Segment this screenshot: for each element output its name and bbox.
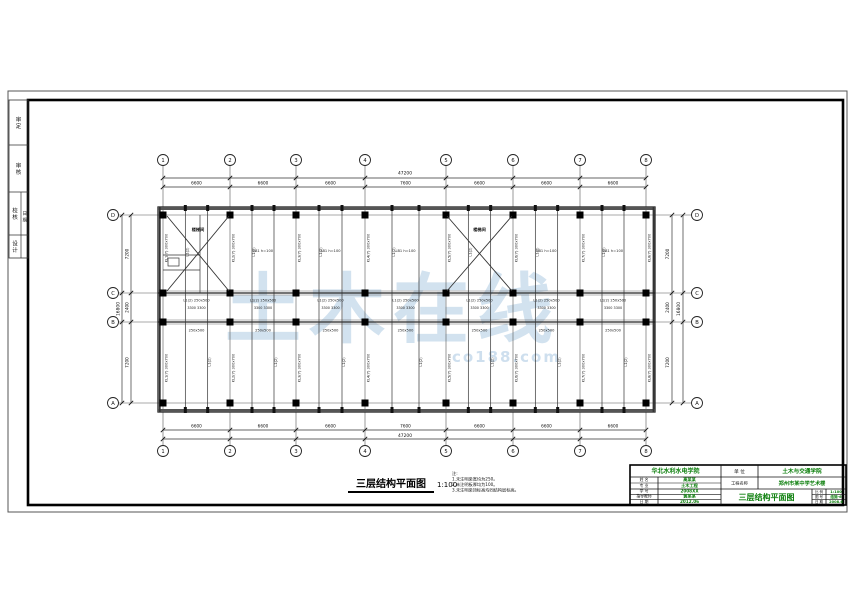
beam-label: L1(2) bbox=[419, 357, 423, 367]
dim-segment-bottom: 6600 bbox=[191, 424, 202, 429]
grid-bubble-label: 2 bbox=[228, 158, 231, 164]
slab-label: LB1 h=100 bbox=[395, 249, 416, 253]
column bbox=[160, 319, 167, 326]
beam-label: L1(2) 250x500 bbox=[317, 299, 344, 303]
dim-segment-left: 7200 bbox=[125, 357, 130, 368]
note-line: 3.未注明梁顶标高均同结构层标高。 bbox=[452, 487, 519, 494]
edge-stub bbox=[418, 205, 421, 211]
column bbox=[643, 212, 650, 219]
dim-segment-right: 7200 bbox=[665, 248, 670, 259]
beam-label: L1(2) 250x500 bbox=[392, 299, 419, 303]
beam-label: KL6(7) 300x700 bbox=[515, 233, 519, 262]
column bbox=[577, 319, 584, 326]
edge-stub bbox=[251, 407, 254, 413]
beam-dim-label: 3300 3300 bbox=[604, 306, 622, 310]
strip-cell-text: 设 bbox=[12, 239, 18, 247]
edge-stub bbox=[184, 205, 187, 211]
inner-border bbox=[28, 100, 843, 505]
beam-label: KL5(7) 300x700 bbox=[448, 233, 452, 262]
titleblock-meta-label: 图 号 bbox=[815, 494, 824, 499]
titleblock-school: 华北水利水电学院 bbox=[651, 467, 699, 475]
edge-stub bbox=[601, 407, 604, 413]
beam-dim-label: 3300 3300 bbox=[470, 306, 488, 310]
column bbox=[160, 400, 167, 407]
grid-bubble-label: 2 bbox=[228, 449, 231, 455]
edge-stub bbox=[391, 205, 394, 211]
dim-segment-bottom: 6600 bbox=[258, 424, 269, 429]
column bbox=[293, 400, 300, 407]
edge-stub bbox=[601, 205, 604, 211]
drawing-sheet: 土木在线 co188.com 审定审核校核设计日期楼梯间楼梯间KL1(7) 30… bbox=[0, 0, 858, 608]
drawing-caption-scale: 1:100 bbox=[437, 481, 457, 489]
beam-label: KL7(7) 300x700 bbox=[582, 353, 586, 382]
beam-label: KL8(7) 300x700 bbox=[648, 233, 652, 262]
beam-label: L1(2) bbox=[558, 357, 562, 367]
column bbox=[362, 212, 369, 219]
dim-segment-top: 6600 bbox=[191, 181, 202, 186]
titleblock-unit-value: 土木与交通学院 bbox=[782, 467, 822, 475]
column bbox=[643, 290, 650, 297]
edge-stub bbox=[341, 205, 344, 211]
grid-bubble-label: A bbox=[111, 401, 115, 407]
drawing-caption-title: 三层结构平面图 bbox=[348, 479, 434, 493]
beam-label: KL4(7) 300x700 bbox=[367, 353, 371, 382]
titleblock-meta-label: 日 期 bbox=[815, 499, 824, 504]
edge-stub bbox=[623, 205, 626, 211]
dim-segment-right: 7200 bbox=[665, 357, 670, 368]
dim-segment-bottom: 6600 bbox=[474, 424, 485, 429]
beam-label: 250x500 bbox=[189, 329, 206, 333]
dim-segment-top: 6600 bbox=[541, 181, 552, 186]
column bbox=[227, 319, 234, 326]
beam-label: 250x500 bbox=[539, 329, 556, 333]
slab-label: LB1 h=100 bbox=[536, 249, 557, 253]
edge-stub bbox=[489, 407, 492, 413]
titleblock-project-value: 郑州市某中学艺术楼 bbox=[779, 479, 827, 487]
beam-label: 250x500 bbox=[472, 329, 489, 333]
strip-cell-text: 核 bbox=[12, 213, 18, 221]
titleblock-info-label: 专 业 bbox=[640, 483, 649, 488]
outer-border bbox=[8, 91, 847, 512]
titleblock-info-value: 2008XX bbox=[680, 488, 699, 493]
titleblock-meta-value: 1:100 bbox=[830, 490, 842, 494]
column bbox=[577, 400, 584, 407]
column bbox=[362, 319, 369, 326]
beam-dim-label: 3300 3300 bbox=[537, 306, 555, 310]
beam-dim-label: 3300 3300 bbox=[187, 306, 205, 310]
strip-cell-text: 审 bbox=[16, 115, 22, 123]
dim-segment-bottom: 6600 bbox=[608, 424, 619, 429]
grid-bubble-label: A bbox=[695, 401, 699, 407]
grid-bubble-label: C bbox=[111, 291, 115, 297]
titleblock-info-label: 姓 名 bbox=[640, 477, 649, 482]
grid-bubble-label: B bbox=[695, 320, 699, 326]
stair-label: 楼梯间 bbox=[473, 226, 486, 233]
beam-label: KL3(7) 300x700 bbox=[298, 233, 302, 262]
column bbox=[293, 319, 300, 326]
beam-label: L1(2) 250x500 bbox=[250, 299, 277, 303]
strip-subcell-text: 日 bbox=[22, 211, 27, 217]
edge-stub bbox=[467, 205, 470, 211]
edge-stub bbox=[184, 407, 187, 413]
beam-label: L1(2) 250x500 bbox=[600, 299, 627, 303]
beam-label: L1(2) bbox=[185, 247, 189, 257]
titleblock-info-label: 学 号 bbox=[640, 488, 649, 493]
strip-cell-text: 审 bbox=[16, 161, 22, 169]
edge-stub bbox=[534, 205, 537, 211]
edge-stub bbox=[206, 407, 209, 413]
strip-subcell-text: 期 bbox=[22, 218, 27, 224]
edge-stub bbox=[206, 205, 209, 211]
grid-bubble-label: 7 bbox=[578, 158, 581, 164]
column bbox=[443, 319, 450, 326]
edge-stub bbox=[489, 205, 492, 211]
edge-stub bbox=[623, 407, 626, 413]
edge-stub bbox=[273, 205, 276, 211]
beam-label: L1(2) bbox=[274, 357, 278, 367]
column bbox=[643, 319, 650, 326]
drawing-caption: 三层结构平面图1:100 bbox=[348, 472, 457, 491]
strip-cell-text: 定 bbox=[16, 122, 22, 130]
dim-segment-top: 6600 bbox=[258, 181, 269, 186]
column bbox=[227, 290, 234, 297]
beam-dim-label: 3300 3300 bbox=[396, 306, 414, 310]
dim-segment-top: 6600 bbox=[608, 181, 619, 186]
edge-stub bbox=[341, 407, 344, 413]
beam-label: KL1(7) 300x700 bbox=[165, 233, 169, 262]
titleblock-project-label: 工程名称 bbox=[731, 480, 748, 487]
grid-bubble-label: 5 bbox=[444, 449, 447, 455]
beam-label: KL6(7) 300x700 bbox=[515, 353, 519, 382]
beam-label: KL4(7) 300x700 bbox=[367, 233, 371, 262]
column bbox=[160, 290, 167, 297]
column bbox=[227, 400, 234, 407]
beam-label: KL2(7) 300x700 bbox=[232, 353, 236, 382]
column bbox=[293, 290, 300, 297]
grid-bubble-label: 3 bbox=[294, 158, 297, 164]
edge-stub bbox=[556, 407, 559, 413]
column bbox=[443, 290, 450, 297]
slab-label: LB1 h=100 bbox=[253, 249, 274, 253]
beam-label: L1(2) bbox=[491, 357, 495, 367]
column bbox=[293, 212, 300, 219]
slab-label: LB1 h=100 bbox=[603, 249, 624, 253]
beam-label: L1(2) bbox=[342, 357, 346, 367]
column bbox=[510, 290, 517, 297]
edge-stub bbox=[318, 205, 321, 211]
dim-segment-bottom: 6600 bbox=[325, 424, 336, 429]
grid-bubble-label: 7 bbox=[578, 449, 581, 455]
floor-plan-canvas: 审定审核校核设计日期楼梯间楼梯间KL1(7) 300x700KL1(7) 300… bbox=[0, 0, 858, 608]
beam-label: 250x500 bbox=[255, 329, 272, 333]
shaft-detail bbox=[168, 258, 179, 266]
column bbox=[510, 319, 517, 326]
beam-label: 250x500 bbox=[323, 329, 340, 333]
edge-stub bbox=[534, 407, 537, 413]
column bbox=[362, 400, 369, 407]
column bbox=[577, 290, 584, 297]
dim-segment-top: 6600 bbox=[474, 181, 485, 186]
beam-label: L1(2) bbox=[208, 357, 212, 367]
slab-label: LB1 h=100 bbox=[320, 249, 341, 253]
beam-label: KL3(7) 300x700 bbox=[298, 353, 302, 382]
column bbox=[362, 290, 369, 297]
beam-label: KL8(7) 300x700 bbox=[648, 353, 652, 382]
grid-bubble-label: 3 bbox=[294, 449, 297, 455]
edge-stub bbox=[391, 407, 394, 413]
titleblock-info-value: 2012.06 bbox=[680, 499, 699, 504]
beam-label: KL5(7) 300x700 bbox=[448, 353, 452, 382]
dim-segment-left: 7200 bbox=[125, 248, 130, 259]
edge-stub bbox=[556, 205, 559, 211]
beam-dim-label: 3300 3300 bbox=[321, 306, 339, 310]
dim-segment-top: 6600 bbox=[325, 181, 336, 186]
grid-bubble-label: 6 bbox=[511, 449, 514, 455]
grid-bubble-label: 1 bbox=[161, 158, 164, 164]
dim-segment-bottom: 6600 bbox=[541, 424, 552, 429]
grid-bubble-label: C bbox=[695, 291, 699, 297]
titleblock-info-label: 日 期 bbox=[640, 499, 649, 504]
beam-label: KL1(7) 300x700 bbox=[165, 353, 169, 382]
grid-bubble-label: 8 bbox=[644, 158, 647, 164]
titleblock-drawing-title: 三层结构平面图 bbox=[739, 492, 795, 502]
grid-bubble-label: 1 bbox=[161, 449, 164, 455]
dim-segment-right: 2400 bbox=[665, 302, 670, 313]
dim-total-left: 16800 bbox=[116, 302, 122, 316]
strip-cell-text: 计 bbox=[12, 246, 18, 254]
titleblock-meta-value: 2008.6 bbox=[829, 500, 843, 504]
dim-total-right: 16800 bbox=[676, 302, 682, 316]
titleblock-meta-label: 比 例 bbox=[815, 489, 824, 494]
beam-label: 250x500 bbox=[398, 329, 415, 333]
beam-label: L1(2) 250x500 bbox=[466, 299, 493, 303]
beam-dim-label: 3300 3300 bbox=[254, 306, 272, 310]
dim-segment-left: 2400 bbox=[125, 302, 130, 313]
beam-label: 250x500 bbox=[605, 329, 622, 333]
strip-cell-text: 校 bbox=[12, 206, 18, 214]
strip-cell-text: 核 bbox=[16, 168, 22, 176]
grid-bubble-label: D bbox=[695, 213, 699, 219]
beam-label: L1(2) bbox=[468, 247, 472, 257]
column bbox=[577, 212, 584, 219]
beam-label: L1(2) 250x500 bbox=[533, 299, 560, 303]
dim-total-bottom: 47200 bbox=[398, 433, 412, 439]
edge-stub bbox=[467, 407, 470, 413]
column bbox=[510, 400, 517, 407]
column bbox=[160, 212, 167, 219]
edge-stub bbox=[273, 407, 276, 413]
column bbox=[643, 400, 650, 407]
edge-stub bbox=[251, 205, 254, 211]
grid-bubble-label: D bbox=[111, 213, 115, 219]
titleblock-unit-label: 单 位 bbox=[734, 468, 745, 475]
beam-label: KL2(7) 300x700 bbox=[232, 233, 236, 262]
edge-stub bbox=[418, 407, 421, 413]
titleblock-info-label: 指导教师 bbox=[636, 494, 651, 499]
grid-bubble-label: B bbox=[111, 320, 115, 326]
titleblock-info-value: 高某某 bbox=[683, 476, 696, 483]
beam-label: L1(2) 250x500 bbox=[183, 299, 210, 303]
column bbox=[443, 400, 450, 407]
stair-label: 楼梯间 bbox=[192, 226, 205, 233]
grid-bubble-label: 6 bbox=[511, 158, 514, 164]
grid-bubble-label: 5 bbox=[444, 158, 447, 164]
beam-label: KL7(7) 300x700 bbox=[582, 233, 586, 262]
titleblock-meta-value: 结施-6 bbox=[829, 494, 842, 499]
dim-segment-top: 7600 bbox=[400, 181, 411, 186]
edge-stub bbox=[318, 407, 321, 413]
grid-bubble-label: 8 bbox=[644, 449, 647, 455]
dim-total-top: 47200 bbox=[398, 171, 412, 177]
beam-label: L1(2) bbox=[624, 357, 628, 367]
dim-segment-bottom: 7600 bbox=[400, 424, 411, 429]
